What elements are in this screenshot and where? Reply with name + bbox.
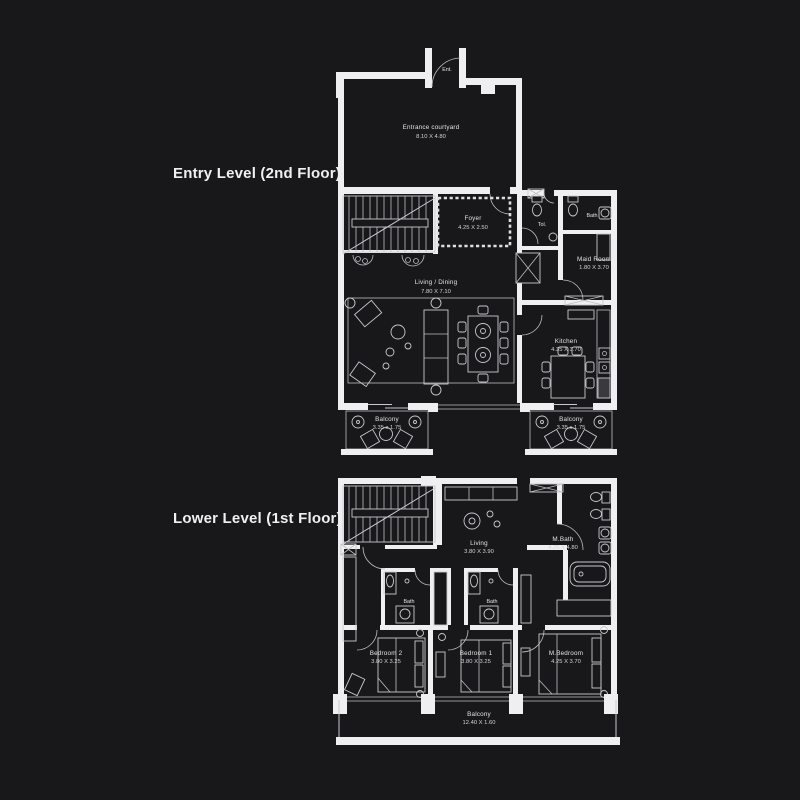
- label-maid-room: Maid Room: [577, 256, 611, 263]
- label-maid-room-dims: 1.80 X 3.70: [579, 265, 609, 271]
- label-bedroom2-dims: 3.80 X 3.25: [371, 659, 401, 665]
- label-foyer-dims: 4.25 X 2.50: [458, 225, 488, 231]
- floorplan-svg: Ent. Entrance courtyard 8.10 X 4.80 Foye…: [0, 0, 800, 800]
- bath1-fixtures: [384, 572, 414, 623]
- label-mbath: M.Bath: [552, 536, 573, 543]
- floorplan-page: Entry Level (2nd Floor) Lower Level (1st…: [0, 0, 800, 800]
- label-toilet: Tol.: [538, 222, 546, 228]
- entry-level-floorplan: Ent. Entrance courtyard 8.10 X 4.80 Foye…: [336, 48, 617, 455]
- label-bedroom1-dims: 3.80 X 3.25: [461, 659, 491, 665]
- label-mbedroom: M.Bedroom: [549, 650, 583, 657]
- living-dining-furniture: [345, 255, 514, 395]
- label-bath: Bath: [586, 213, 597, 219]
- lower-shaft-window-icon: [341, 484, 563, 555]
- label-lower-balcony: Balcony: [467, 711, 491, 718]
- label-entrance-courtyard: Entrance courtyard: [403, 124, 460, 131]
- entry-foyer-outline: [438, 198, 510, 246]
- entry-room-labels: Ent. Entrance courtyard 8.10 X 4.80 Foye…: [373, 67, 611, 431]
- label-lower-living: Living: [470, 540, 488, 547]
- label-bath2: Bath: [486, 599, 497, 605]
- label-entrance-courtyard-dims: 8.10 X 4.80: [416, 134, 446, 140]
- label-mbedroom-dims: 4.25 X 3.70: [551, 659, 581, 665]
- label-living-dining-dims: 7.80 X 7.10: [421, 289, 451, 295]
- mbath-fixtures: [570, 492, 611, 586]
- entry-elevator-icon: [516, 253, 540, 283]
- lower-level-floorplan: Living 3.80 X 3.90 M.Bath 4.25 X 4.80 Ba…: [333, 476, 620, 745]
- label-lower-living-dims: 3.80 X 3.90: [464, 549, 494, 555]
- label-kitchen-dims: 4.35 X 3.70: [551, 347, 581, 353]
- bath2-fixtures: [468, 572, 498, 623]
- label-kitchen: Kitchen: [555, 338, 578, 345]
- label-balcony-right-dims: 3.35 x 1.75: [557, 425, 586, 431]
- label-foyer: Foyer: [464, 215, 481, 222]
- label-entrance-door: Ent.: [442, 67, 452, 73]
- label-balcony-right: Balcony: [559, 416, 583, 423]
- label-bedroom2: Bedroom 2: [370, 650, 403, 657]
- lower-living-sofa-icon: [445, 487, 517, 529]
- label-bath1: Bath: [403, 599, 414, 605]
- label-living-dining: Living / Dining: [415, 279, 458, 286]
- label-balcony-left-dims: 3.35 x 1.75: [373, 425, 402, 431]
- lower-staircase-icon: [343, 486, 435, 544]
- label-bedroom1: Bedroom 1: [460, 650, 493, 657]
- kitchen-fixtures: [542, 310, 610, 398]
- lower-room-labels: Living 3.80 X 3.90 M.Bath 4.25 X 4.80 Ba…: [370, 536, 583, 726]
- entry-level-title: Entry Level (2nd Floor): [173, 165, 341, 182]
- lower-level-title: Lower Level (1st Floor): [173, 510, 342, 527]
- label-mbath-dims: 4.25 X 4.80: [548, 545, 578, 551]
- entry-staircase-icon: [343, 196, 435, 254]
- label-balcony-left: Balcony: [375, 416, 399, 423]
- label-lower-balcony-dims: 12.40 X 1.60: [463, 720, 496, 726]
